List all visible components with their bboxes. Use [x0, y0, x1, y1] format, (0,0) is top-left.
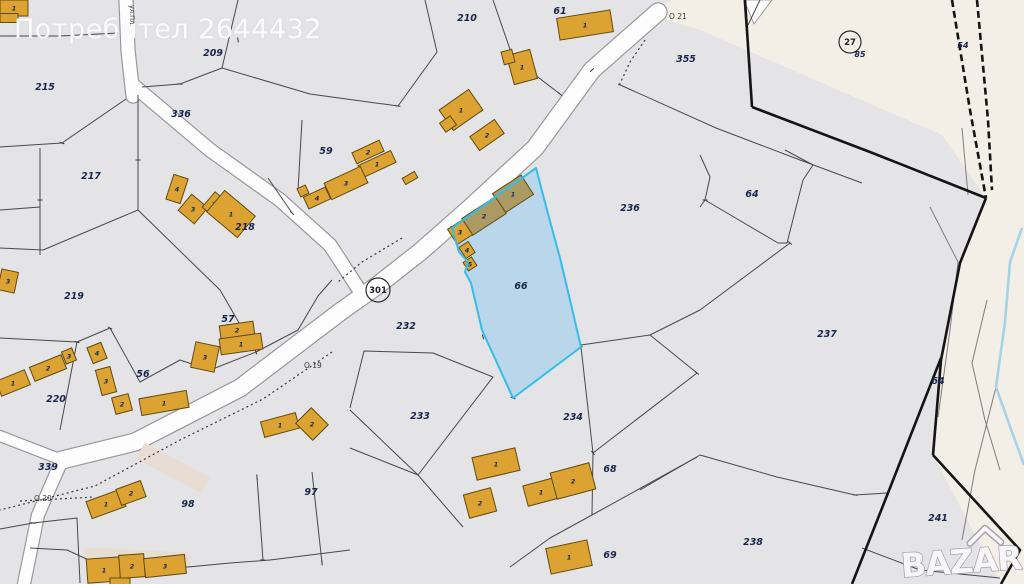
building-number: 3 [67, 352, 72, 360]
building-number: 2 [235, 326, 240, 334]
badge-label-301: 301 [369, 286, 387, 296]
parcel-label-97[interactable]: 97 [304, 487, 318, 498]
survey-point-label: O 20 [34, 494, 52, 503]
brand-watermark: BAZAR [900, 538, 1024, 584]
building-number: 2 [482, 212, 487, 220]
building-footprint [110, 578, 130, 584]
building: 2 [119, 554, 146, 579]
parcel-label-59[interactable]: 59 [319, 146, 333, 157]
building [110, 578, 130, 584]
parcel-label-238[interactable]: 238 [743, 537, 763, 548]
parcel-label-215[interactable]: 215 [35, 82, 55, 93]
building-number: 1 [104, 500, 109, 508]
building-number: 2 [120, 400, 125, 408]
parcel-label-236[interactable]: 236 [620, 203, 640, 214]
building-number: 1 [102, 566, 107, 574]
building-number: 1 [162, 399, 167, 407]
parcel-label-210[interactable]: 210 [457, 13, 477, 24]
parcel-label-64[interactable]: 64 [745, 189, 759, 200]
building-number: 2 [485, 131, 490, 139]
building-number: 1 [229, 210, 234, 218]
parcel-label-218[interactable]: 218 [235, 222, 255, 233]
building-number: 2 [366, 148, 371, 156]
building-number: 4 [465, 246, 470, 254]
building-number: 2 [130, 562, 135, 570]
building-number: 3 [458, 228, 463, 236]
building-number: 1 [278, 421, 283, 429]
building-number: 1 [239, 340, 244, 348]
building: 3 [144, 554, 187, 577]
parcel-label-66[interactable]: 66 [514, 281, 528, 292]
building-number: 4 [95, 349, 100, 357]
building-number: 1 [520, 63, 525, 71]
parcel-label-98[interactable]: 98 [181, 499, 195, 510]
building-number: 1 [459, 106, 464, 114]
building-number: 1 [375, 160, 380, 168]
building-number: 4 [175, 185, 180, 193]
building: 3 [191, 342, 220, 372]
building-number: 4 [315, 194, 320, 202]
parcel-label-68[interactable]: 68 [603, 464, 617, 475]
parcel-label-57[interactable]: 57 [221, 314, 235, 325]
building-number: 1 [583, 21, 588, 29]
parcel-label-336[interactable]: 336 [171, 109, 191, 120]
street-name-label: ул.Пл. [128, 5, 136, 26]
building-number: 2 [571, 477, 576, 485]
building: 2 [112, 394, 133, 415]
parcel-label-220[interactable]: 220 [46, 394, 66, 405]
building-number: 3 [203, 353, 208, 361]
building-footprint [0, 14, 18, 23]
building-number: 2 [478, 499, 483, 507]
parcel-label-339[interactable]: 339 [38, 462, 58, 473]
building-number: 1 [11, 379, 16, 387]
parcel-label-217[interactable]: 217 [81, 171, 101, 182]
building-number: 1 [511, 190, 516, 198]
parcel-label-209[interactable]: 209 [203, 48, 223, 59]
building-number: 3 [191, 205, 196, 213]
badge-label-27: 27 [844, 38, 856, 48]
building-number: 3 [344, 179, 349, 187]
parcel-label-233[interactable]: 233 [410, 411, 430, 422]
parcel-label-232[interactable]: 232 [396, 321, 416, 332]
building-number: 2 [310, 420, 315, 428]
cadastral-map-viewport[interactable]: 1111221344321312343213211234512121212112… [0, 0, 1024, 584]
parcel-label-61[interactable]: 61 [553, 6, 566, 17]
parcel-label-54[interactable]: 54 [957, 41, 969, 50]
parcel-label-56[interactable]: 56 [136, 369, 150, 380]
parcel-label-241[interactable]: 241 [928, 513, 948, 524]
parcel-label-64[interactable]: 64 [931, 376, 945, 387]
parcel-label-237[interactable]: 237 [817, 329, 837, 340]
survey-point-label: O 19 [304, 361, 322, 370]
building-number: 1 [567, 553, 572, 561]
parcel-label-355[interactable]: 355 [676, 54, 696, 65]
building [0, 14, 18, 23]
building-number: 3 [104, 377, 109, 385]
building-number: 2 [129, 489, 134, 497]
building-number: 1 [494, 460, 499, 468]
parcel-label-219[interactable]: 219 [64, 291, 84, 302]
cadastral-map[interactable]: 1111221344321312343213211234512121212112… [0, 0, 1024, 584]
parcel-label-234[interactable]: 234 [563, 412, 583, 423]
building-number: 3 [163, 562, 168, 570]
building-number: 1 [12, 4, 17, 12]
building-number: 3 [6, 277, 11, 285]
building-number: 2 [46, 364, 51, 372]
building-number: 1 [539, 488, 544, 496]
survey-point-label: O 21 [669, 12, 687, 21]
parcel-label-69[interactable]: 69 [603, 550, 617, 561]
